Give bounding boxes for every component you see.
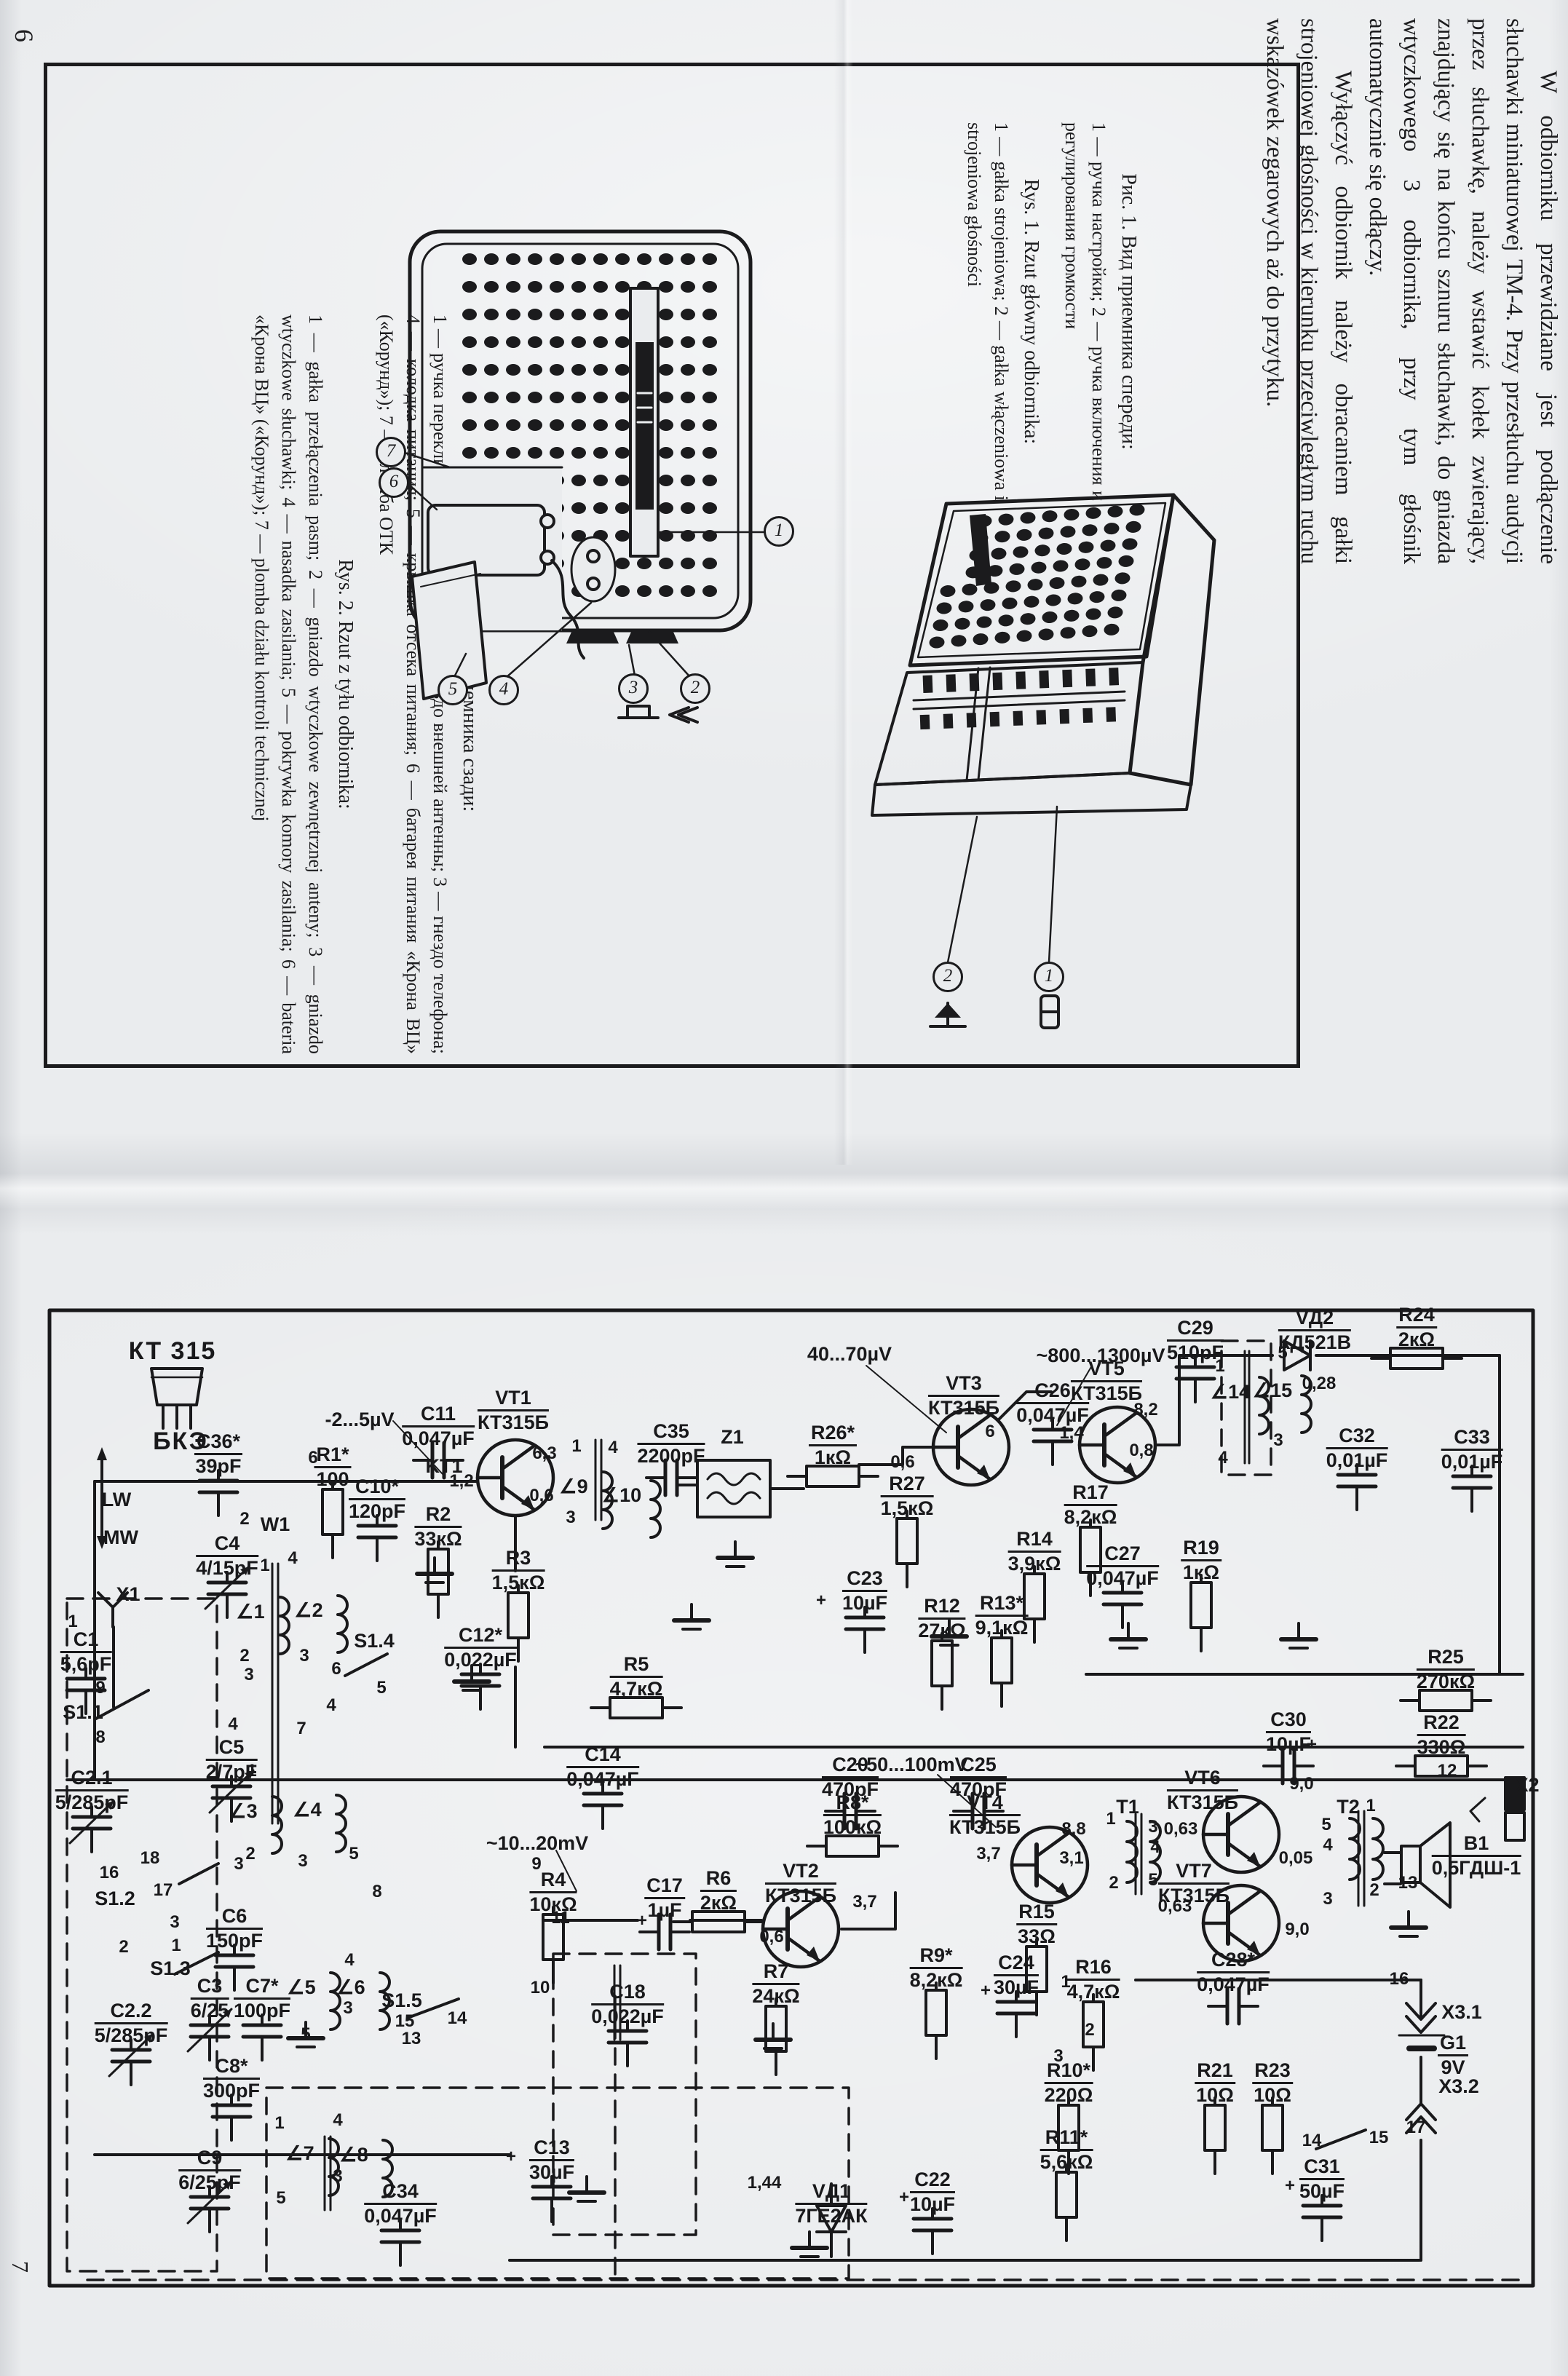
schematic-label-C33: C330,01µF [1441,1427,1503,1473]
schematic-text-94: 6 [985,1422,994,1441]
schematic-label-C10: C10*120pF [349,1476,405,1522]
schematic-text-62: 4 [333,2111,342,2130]
schematic-text-161: 0,63 [1158,1897,1192,1916]
schematic-text-16: 2 [119,1938,128,1957]
schematic-text-15: 3 [170,1913,179,1932]
schematic-text-43: 5 [349,1845,358,1864]
schematic-label-VT1: VT1КТ315Б [478,1387,549,1433]
schematic-text-98: 8,2 [1133,1401,1157,1419]
schematic-text-162: 0,05 [1279,1849,1313,1868]
schematic-text-187: 15 [1369,2128,1389,2147]
schematic-text-186: 14 [1302,2131,1322,2150]
schematic-label-VT2: VT2КТ315Б [765,1861,836,1906]
schematic-label-C30: C3010µF [1266,1709,1311,1755]
schematic-text-131: 12 [1438,1762,1457,1781]
schematic-text-170: 2 [1369,1881,1379,1900]
schematic-text-24: ∠1 [236,1601,264,1623]
schematic-text-44: 8 [372,1882,381,1901]
schematic-text-23: 1 [260,1556,269,1575]
schematic-text-12: S1.2 [95,1888,135,1909]
schematic-text-163: 9,0 [1289,1775,1313,1794]
schematic-text-157: 5 [1148,1871,1157,1890]
schematic-text-191: 1,44 [748,2174,782,2193]
schematic-text-164: 9,0 [1285,1920,1309,1939]
schematic-text-34: 7 [296,1719,306,1738]
schematic-text-168: 3 [1323,1890,1332,1909]
schematic-text-52: 5 [301,2025,310,2044]
schematic-label-C18: C180,022µF [591,1981,664,2027]
schematic-text-127: 3,7 [976,1845,1000,1864]
schematic-text-42: 3 [298,1852,307,1871]
schematic-label-C3: C36/25 [191,1976,229,2021]
schematic-label-R14: R143,9кΩ [1008,1529,1061,1575]
schematic-text-159: 0,63 [1164,1820,1198,1839]
schematic-text-109: 0,28 [1302,1374,1337,1393]
schematic-label-C31: C3150µF [1299,2156,1345,2202]
schematic-text-171: 13 [1398,1874,1418,1893]
schematic-text-75: 6,3 [532,1444,556,1463]
schematic-label-VД2: VД2КД521В [1278,1307,1351,1353]
schematic-text-13: 18 [140,1849,160,1868]
schematic-text-151: 8,8 [1061,1820,1085,1839]
schematic-label-C22: C2210µF [910,2169,955,2215]
schematic-text-181: X3.2 [1438,2076,1479,2097]
schematic-text-21: 2 [239,1510,249,1529]
schematic-label-C12: C12*0,022µF [444,1625,517,1671]
schematic-label-R11: R11*5,6кΩ [1040,2127,1093,2173]
schematic-label-R17: R178,2кΩ [1064,1482,1117,1528]
schematic-text-104: 1 [1215,1357,1224,1376]
schematic-label-VT6: VT6КТ315Б [1167,1767,1238,1813]
schematic-label-C9: C96/25pF [178,2147,241,2193]
schematic-text-41: 3 [234,1855,243,1874]
schematic-label-R9: R9*8,2кΩ [910,1945,963,1991]
schematic-text-7: S1.1 [63,1702,103,1723]
schematic-label-R12: R1227кΩ [918,1596,965,1642]
schematic-label-R3: R31,5кΩ [492,1548,545,1593]
schematic-text-84: 1 [571,1437,581,1456]
schematic-text-155: 3 [1148,1818,1157,1837]
schematic-text-165: T2 [1337,1797,1360,1818]
schematic-text-167: 4 [1323,1836,1332,1855]
schematic-text-50: 4 [344,1951,354,1970]
schematic-text-70: -2...5µV [325,1409,394,1430]
schematic-label-C27: C270,047µF [1086,1543,1159,1589]
schematic-text-179: X3.1 [1441,2002,1482,2023]
schematic-label-R5: R54,7кΩ [610,1654,663,1700]
schematic-text-118: + [816,1591,826,1610]
schematic-label-G1: G19V [1438,2032,1468,2078]
schematic-text-25: ∠2 [294,1600,322,1621]
schematic-label-R10: R10*220Ω [1045,2060,1093,2106]
schematic-text-139: + [637,1912,647,1930]
schematic-label-R1: R1*100 [314,1444,351,1490]
schematic-text-18: S1.3 [150,1958,191,1979]
schematic-label-C35: C352200pF [637,1421,705,1467]
schematic-text-102: ∠14 [1211,1382,1250,1403]
schematic-text-40: 2 [245,1845,255,1864]
schematic-text-194: + [899,2188,909,2207]
schematic-text-174: 1 [1061,1973,1070,1992]
schematic-text-148: + [981,1981,991,2000]
schematic-label-R25: R25270кΩ [1417,1647,1475,1692]
schematic-label-C28: C28*0,047µF [1197,1949,1270,1995]
schematic-label-VT3: VT3КТ315Б [928,1373,999,1419]
schematic-label-R19: R191кΩ [1181,1537,1221,1583]
schematic-text-61: 1 [274,2114,284,2133]
schematic-text-32: 5 [376,1679,386,1698]
schematic-label-VД1: VД17ГЕ2АК [795,2181,867,2227]
schematic-label-R23: R2310Ω [1252,2060,1293,2106]
schematic-text-142: 0,6 [759,1928,783,1947]
schematic-label-R13: R13*9,1кΩ [975,1593,1029,1639]
schematic-label-C4: C44/15pF [196,1533,258,1579]
schematic-text-190: + [1285,2177,1295,2195]
schematic-text-178: 16 [1390,1970,1409,1989]
z1-filter-symbol [697,1460,770,1517]
schematic-text-152: 3,1 [1059,1849,1083,1868]
schematic-text-143: 3,7 [852,1893,876,1912]
schematic-label-C22: C2.25/285pF [95,2000,168,2046]
scanned-manual-page: { "colors": {"paper": "#eaecee", "ink": … [0,0,1568,2376]
schematic-text-129: + [1307,1735,1317,1754]
schematic-label-R26: R26*1кΩ [809,1422,857,1468]
schematic-text-27: 2 [239,1647,249,1666]
schematic-label-VT5: VT5КТ315Б [1071,1358,1142,1404]
schematic-text-175: 2 [1085,2021,1094,2040]
schematic-label-C23: C2310µF [842,1568,887,1614]
schematic-label-R7: R724кΩ [752,1961,799,2007]
schematic-text-76: 0,6 [529,1486,553,1505]
schematic-text-103: ∠15 [1253,1380,1292,1401]
schematic-text-26: 4 [288,1549,297,1568]
schematic-text-90: 40...70µV [807,1344,892,1365]
schematic-label-C1: C15,6pF [60,1629,112,1675]
schematic-text-132: X2 [1515,1775,1539,1796]
schematic-text-99: 1,4 [1059,1424,1083,1443]
schematic-text-9: 8 [95,1728,105,1747]
schematic-label-R21: R2110Ω [1195,2060,1235,2106]
schematic-text-85: 4 [608,1438,617,1457]
schematic-label-VT4: VT4КТ315Б [949,1792,1021,1838]
schematic-text-136: 11 [551,1909,569,1928]
schematic-label-R27: R271,5кΩ [881,1473,934,1519]
schematic-text-51: 3 [343,1999,352,2018]
schematic-text-49: ∠6 [336,1977,365,1998]
schematic-label-C8: C8*300pF [203,2056,260,2102]
schematic-text-3: MW [103,1527,138,1548]
schematic-text-55: 14 [448,2009,467,2028]
schematic-label-R24: R242кΩ [1396,1304,1437,1350]
schematic-text-63: 3 [333,2167,342,2186]
schematic-text-166: 5 [1321,1815,1331,1834]
schematic-text-88: Z1 [721,1427,744,1448]
schematic-text-48: ∠5 [287,1977,315,1998]
schematic-label-B1: B10,5ГДШ-1 [1432,1833,1521,1879]
schematic-label-R22: R22330Ω [1417,1712,1466,1758]
schematic-text-83: ∠10 [602,1485,641,1506]
schematic-text-106: 4 [1218,1449,1227,1468]
schematic-text-4: X1 [116,1584,140,1605]
schematic-text-2: LW [102,1489,132,1510]
schematic-label-R15: R1533Ω [1016,1901,1057,1947]
kt315-package-drawing [151,1369,202,1428]
schematic-label-C24: C2430µF [994,1952,1039,1998]
schematic-text-22: W1 [261,1514,290,1535]
schematic-text-107: 3 [1273,1431,1283,1450]
schematic-text-56: 13 [402,2029,421,2048]
schematic-text-196: + [506,2147,516,2166]
schematic-text-11: 16 [100,1864,119,1882]
schematic-text-53: S1.5 [381,1990,422,2011]
schematic-text-33: 4 [326,1696,336,1715]
schematic-text-188: 17 [1406,2118,1426,2137]
schematic-text-133: ~10...20mV [486,1833,588,1854]
schematic-text-86: 3 [566,1508,575,1527]
schematic-text-14: 17 [154,1881,173,1900]
schematic-label-C34: C340,047µF [364,2181,437,2227]
schematic-label-C36: C36*39pF [194,1431,242,1477]
schematic-wires [67,1355,1523,2260]
schematic-label-C6: C6150pF [206,1906,263,1952]
schematic-text-17: 1 [171,1936,181,1955]
schematic-text-60: ∠8 [339,2145,368,2166]
schematic-text-73: 1,2 [449,1472,473,1491]
schematic-label-C14: C140,047µF [566,1744,639,1790]
schematic-text-37: 1 [247,1762,256,1781]
schematic-text-8: 9 [95,1679,105,1698]
schematic-text-156: 4 [1150,1838,1160,1857]
schematic-label-R16: R164,7кΩ [1067,1957,1120,2003]
schematic-text-137: 10 [531,1979,550,1997]
schematic-label-C7: C7*100pF [234,1976,290,2021]
schematic-text-36: 4 [228,1715,237,1734]
schematic-text-150: T1 [1116,1797,1139,1818]
schematic-text-31: 6 [331,1660,341,1679]
schematic-label-C13: C1330µF [529,2137,574,2183]
schematic-text-100: 0,8 [1129,1441,1153,1460]
schematic-text-0: КТ 315 [129,1338,217,1365]
schematic-text-169: 1 [1366,1797,1375,1815]
schematic-text-30: S1.4 [354,1631,395,1652]
schematic-text-64: 5 [276,2189,285,2208]
schematic-label-R8: R8*100кΩ [823,1792,882,1838]
schematic-label-C17: C171µF [644,1875,685,1921]
schematic-label-C21: C2.15/285pF [55,1767,129,1813]
schematic-text-28: 3 [244,1666,253,1684]
schematic-label-R6: R62кΩ [700,1868,737,1914]
schematic-label-C11: C110,047µF [402,1403,475,1449]
schematic-text-38: ∠3 [229,1801,257,1822]
schematic-text-59: ∠7 [285,2143,314,2164]
schematic-label-C32: C320,01µF [1326,1425,1388,1471]
schematic-text-82: ∠9 [559,1476,587,1497]
schematic-text-154: 2 [1109,1874,1118,1893]
schematic-text-91: 0,6 [890,1453,914,1472]
schematic-label-R2: R233кΩ [414,1504,462,1550]
schematic-text-39: ∠4 [293,1799,321,1821]
schematic-text-153: 1 [1106,1810,1115,1829]
schematic-text-29: 3 [299,1647,309,1666]
